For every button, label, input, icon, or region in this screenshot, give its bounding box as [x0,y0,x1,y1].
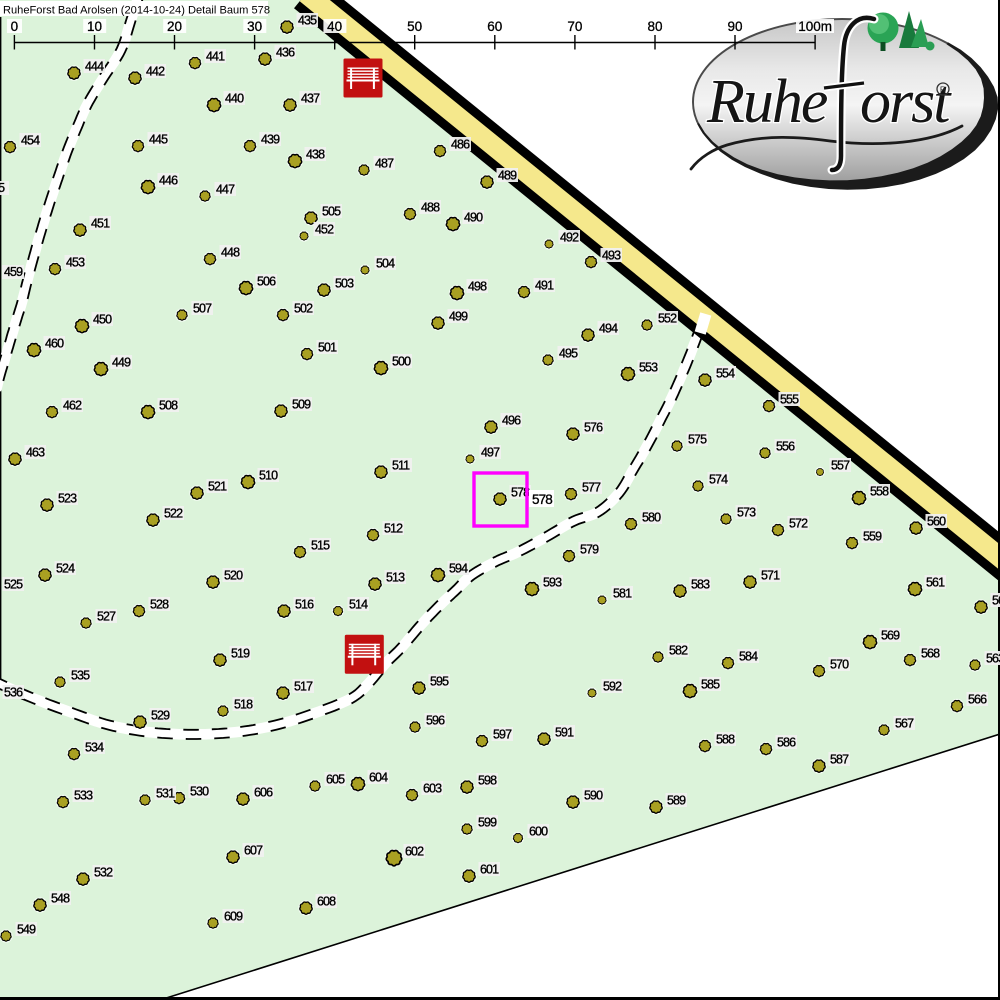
svg-text:582: 582 [669,644,688,658]
svg-text:601: 601 [480,863,499,877]
svg-text:495: 495 [559,347,578,361]
svg-text:570: 570 [830,658,849,672]
svg-text:555: 555 [780,393,799,407]
svg-text:497: 497 [481,446,500,460]
svg-text:606: 606 [254,786,273,800]
svg-text:524: 524 [56,562,75,576]
svg-text:577: 577 [582,481,601,495]
svg-text:571: 571 [761,569,780,583]
svg-text:562: 562 [992,594,1000,608]
svg-text:549: 549 [17,923,36,937]
svg-text:533: 533 [74,789,93,803]
svg-text:460: 460 [45,337,64,351]
svg-text:580: 580 [642,511,661,525]
svg-text:579: 579 [580,543,599,557]
svg-text:508: 508 [159,399,178,413]
svg-text:556: 556 [776,440,795,454]
svg-text:RuheForst Bad Arolsen (2014-10: RuheForst Bad Arolsen (2014-10-24) Detai… [3,5,270,17]
svg-text:R: R [940,85,946,95]
svg-text:502: 502 [294,302,313,316]
svg-text:487: 487 [375,157,394,171]
svg-text:451: 451 [91,217,110,231]
svg-text:598: 598 [478,774,497,788]
svg-text:512: 512 [384,522,403,536]
svg-text:438: 438 [306,148,325,162]
svg-text:602: 602 [405,845,424,859]
svg-text:441: 441 [206,50,225,64]
svg-text:597: 597 [493,728,512,742]
svg-text:568: 568 [921,647,940,661]
svg-text:559: 559 [863,530,882,544]
svg-text:566: 566 [968,693,987,707]
svg-text:531: 531 [156,787,175,801]
svg-text:585: 585 [701,678,720,692]
svg-text:520: 520 [224,569,243,583]
svg-text:463: 463 [26,446,45,460]
svg-text:507: 507 [193,302,212,316]
svg-text:90: 90 [727,19,742,34]
svg-text:534: 534 [85,741,104,755]
svg-text:592: 592 [603,680,622,694]
svg-text:603: 603 [423,782,442,796]
svg-text:511: 511 [392,459,410,473]
svg-text:596: 596 [426,714,445,728]
svg-text:447: 447 [216,183,235,197]
svg-text:436: 436 [276,46,295,60]
svg-text:574: 574 [709,473,728,487]
svg-text:593: 593 [543,576,562,590]
svg-text:20: 20 [167,19,182,34]
svg-text:604: 604 [369,771,388,785]
svg-text:584: 584 [739,650,758,664]
svg-text:553: 553 [639,361,658,375]
svg-text:488: 488 [421,201,440,215]
svg-text:529: 529 [151,709,170,723]
svg-text:575: 575 [688,433,707,447]
svg-text:594: 594 [449,562,468,576]
svg-text:50: 50 [407,19,422,34]
svg-text:576: 576 [584,421,603,435]
svg-text:496: 496 [502,414,521,428]
svg-text:orst: orst [860,68,952,136]
svg-text:573: 573 [737,506,756,520]
svg-text:453: 453 [66,256,85,270]
svg-text:535: 535 [71,669,90,683]
svg-text:609: 609 [224,910,243,924]
svg-text:600: 600 [529,825,548,839]
svg-text:503: 503 [335,277,354,291]
svg-text:454: 454 [21,134,40,148]
svg-text:569: 569 [881,629,900,643]
svg-text:548: 548 [51,892,70,906]
svg-text:70: 70 [567,19,582,34]
svg-text:554: 554 [716,367,735,381]
svg-text:462: 462 [63,399,82,413]
svg-text:583: 583 [691,578,710,592]
svg-text:448: 448 [221,246,240,260]
svg-text:499: 499 [449,310,468,324]
svg-text:527: 527 [97,610,116,624]
svg-text:449: 449 [112,356,131,370]
svg-text:532: 532 [94,866,113,880]
svg-text:445: 445 [149,133,168,147]
svg-text:608: 608 [317,895,336,909]
svg-text:435: 435 [298,14,317,28]
svg-text:560: 560 [927,515,946,529]
svg-text:561: 561 [926,576,945,590]
svg-text:60: 60 [487,19,502,34]
svg-text:Ruhe: Ruhe [706,68,828,136]
svg-text:498: 498 [468,280,487,294]
svg-text:605: 605 [326,773,345,787]
svg-text:0: 0 [11,19,19,34]
svg-text:509: 509 [292,398,311,412]
svg-text:552: 552 [658,312,677,326]
svg-text:517: 517 [294,680,313,694]
svg-text:459: 459 [4,265,23,279]
svg-text:80: 80 [647,19,662,34]
svg-text:521: 521 [208,480,227,494]
svg-text:500: 500 [392,355,411,369]
svg-text:528: 528 [150,598,169,612]
svg-text:501: 501 [318,341,337,355]
svg-text:492: 492 [560,231,579,245]
svg-text:505: 505 [322,205,341,219]
svg-text:489: 489 [498,169,517,183]
svg-text:442: 442 [146,65,165,79]
svg-text:10: 10 [87,19,102,34]
svg-text:486: 486 [451,138,470,152]
svg-text:516: 516 [295,598,314,612]
svg-text:490: 490 [464,211,483,225]
svg-text:437: 437 [301,92,320,106]
svg-text:514: 514 [349,598,368,612]
svg-text:578: 578 [532,492,552,507]
svg-text:519: 519 [231,647,250,661]
svg-text:493: 493 [602,249,621,263]
svg-text:450: 450 [93,313,112,327]
svg-text:523: 523 [58,492,77,506]
svg-text:444: 444 [85,60,104,74]
svg-text:590: 590 [584,789,603,803]
svg-text:607: 607 [244,844,263,858]
svg-text:515: 515 [311,539,330,553]
svg-text:518: 518 [234,698,253,712]
svg-text:446: 446 [159,174,178,188]
svg-text:40: 40 [327,19,342,34]
svg-text:30: 30 [247,19,262,34]
svg-text:581: 581 [613,587,632,601]
svg-text:572: 572 [789,517,808,531]
svg-text:567: 567 [895,717,914,731]
svg-text:595: 595 [430,675,449,689]
svg-text:599: 599 [478,816,497,830]
svg-text:494: 494 [599,322,618,336]
svg-text:530: 530 [190,785,209,799]
svg-text:558: 558 [870,485,889,499]
svg-text:522: 522 [164,507,183,521]
svg-text:587: 587 [830,753,849,767]
svg-text:525: 525 [4,578,23,592]
svg-text:452: 452 [315,223,334,237]
svg-text:504: 504 [376,257,395,271]
svg-text:586: 586 [777,736,796,750]
svg-text:589: 589 [667,794,686,808]
svg-text:588: 588 [716,733,735,747]
svg-text:440: 440 [225,92,244,106]
svg-text:557: 557 [831,459,850,473]
svg-text:536: 536 [4,686,23,700]
svg-text:513: 513 [386,571,405,585]
svg-text:439: 439 [261,133,280,147]
svg-text:510: 510 [259,469,278,483]
svg-text:491: 491 [535,279,554,293]
svg-text:591: 591 [555,726,574,740]
svg-text:506: 506 [257,275,276,289]
svg-text:563: 563 [986,652,1000,666]
svg-text:100m: 100m [798,19,832,34]
